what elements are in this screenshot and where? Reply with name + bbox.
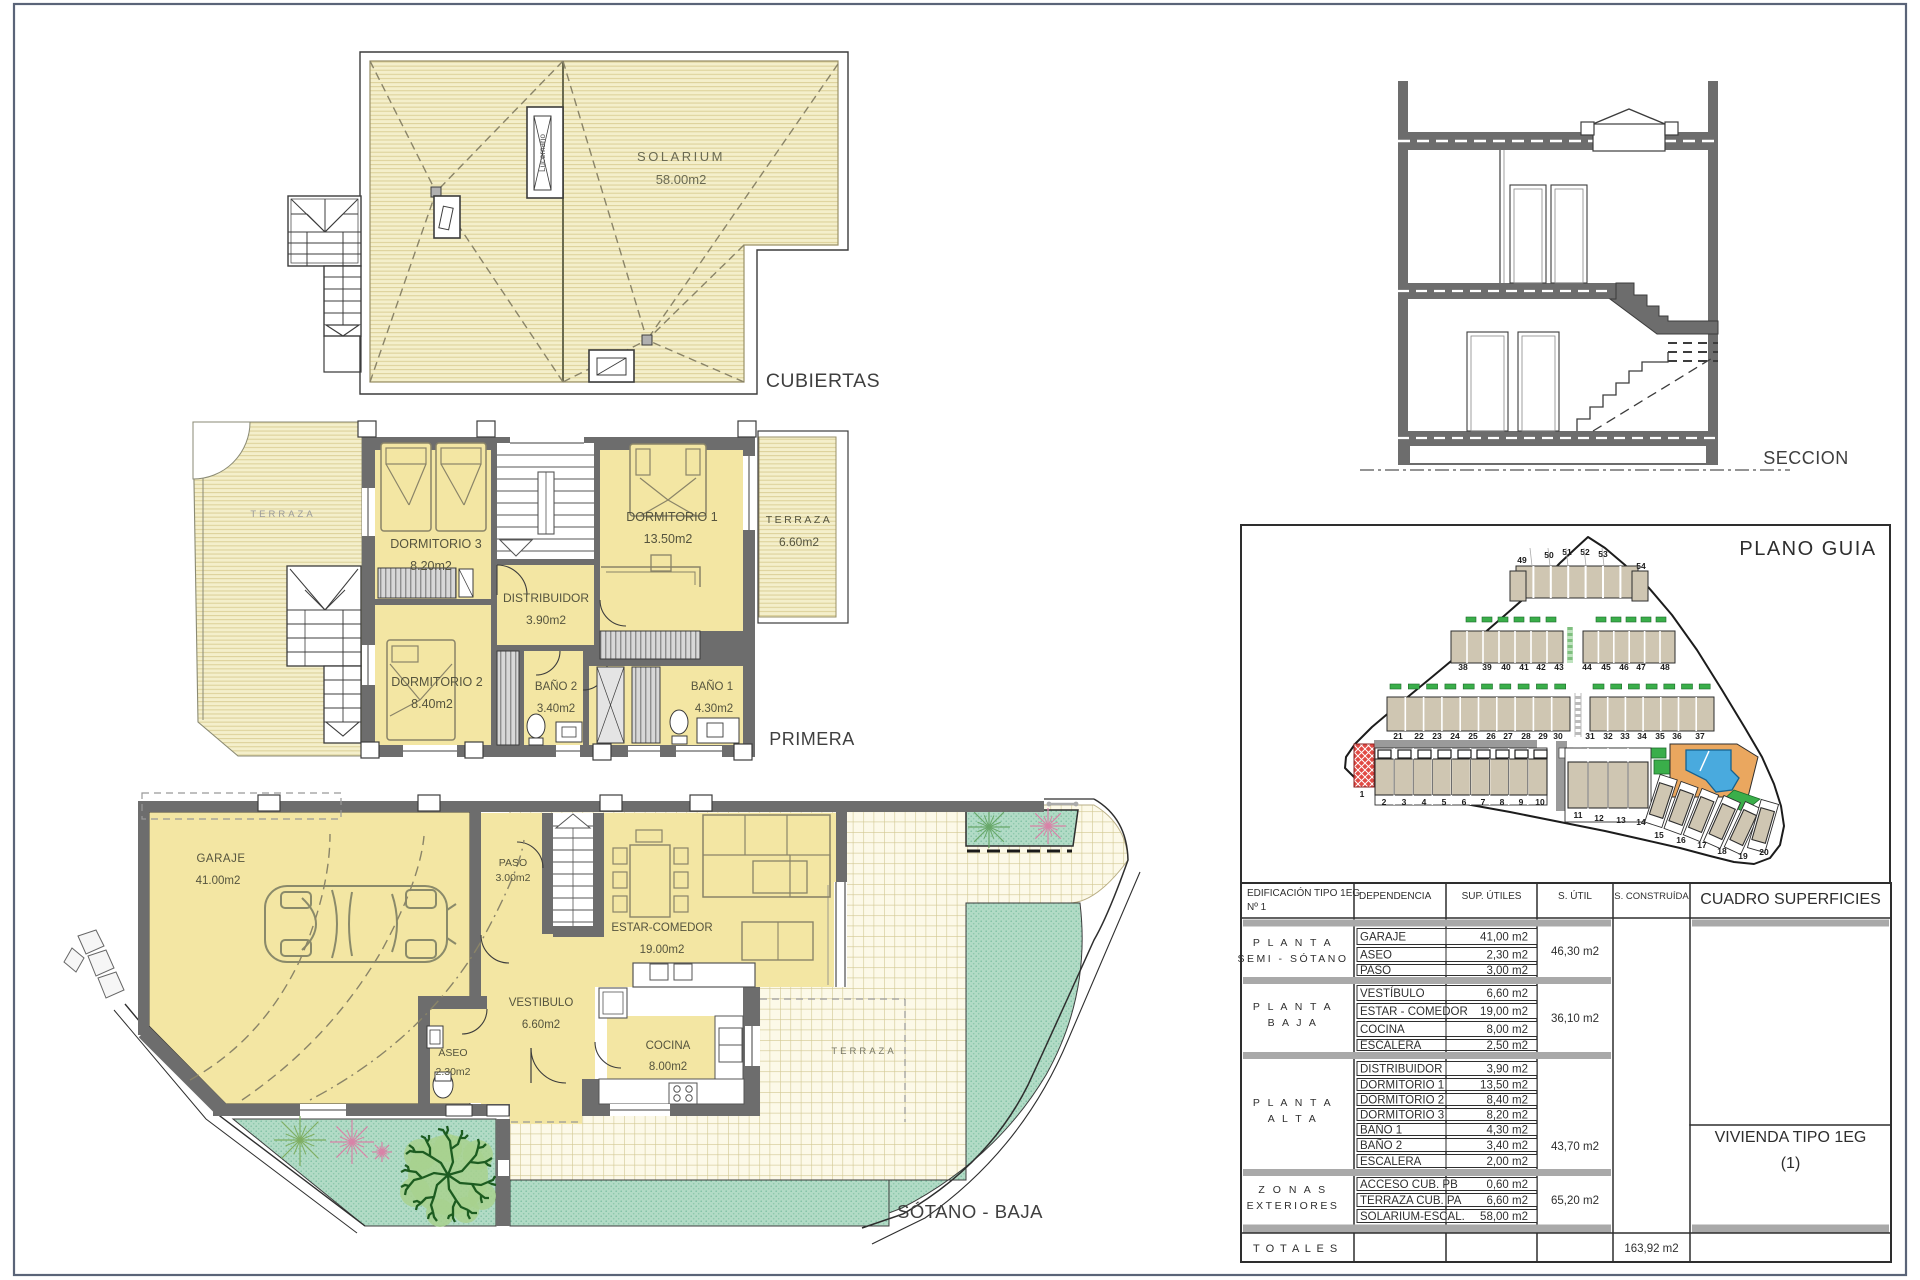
svg-text:B A J A: B A J A [1268, 1017, 1319, 1029]
svg-text:2: 2 [1382, 797, 1387, 807]
svg-text:15: 15 [1654, 830, 1664, 840]
svg-text:DORMITORIO 3: DORMITORIO 3 [390, 537, 481, 551]
svg-text:13,50 m2: 13,50 m2 [1480, 1080, 1528, 1092]
svg-text:8.20m2: 8.20m2 [410, 559, 452, 573]
svg-text:DORMITORIO 3: DORMITORIO 3 [1360, 1110, 1444, 1122]
svg-text:VESTÍBULO: VESTÍBULO [1360, 987, 1425, 1000]
svg-text:47: 47 [1636, 662, 1646, 672]
svg-text:8: 8 [1500, 797, 1505, 807]
svg-text:24: 24 [1450, 731, 1460, 741]
svg-text:44: 44 [1582, 662, 1592, 672]
svg-text:2,30 m2: 2,30 m2 [1486, 950, 1528, 962]
svg-text:48: 48 [1660, 662, 1670, 672]
svg-text:54: 54 [1636, 561, 1646, 571]
svg-text:3,00 m2: 3,00 m2 [1486, 965, 1528, 977]
svg-text:3: 3 [1402, 797, 1407, 807]
svg-text:2,50 m2: 2,50 m2 [1486, 1040, 1528, 1052]
svg-text:ASEO: ASEO [438, 1047, 467, 1059]
svg-text:BAÑO 2: BAÑO 2 [535, 680, 577, 693]
svg-text:23: 23 [1432, 731, 1442, 741]
svg-text:38: 38 [1458, 662, 1468, 672]
svg-text:4,30 m2: 4,30 m2 [1486, 1125, 1528, 1137]
svg-text:DISTRIBUIDOR: DISTRIBUIDOR [503, 591, 589, 605]
svg-text:VIVIENDA TIPO 1EG: VIVIENDA TIPO 1EG [1715, 1129, 1867, 1146]
svg-text:SUP. ÚTILES: SUP. ÚTILES [1462, 889, 1522, 902]
svg-text:43,70 m2: 43,70 m2 [1551, 1141, 1599, 1153]
svg-text:65,20 m2: 65,20 m2 [1551, 1195, 1599, 1207]
svg-text:49: 49 [1517, 555, 1527, 565]
svg-text:8,40 m2: 8,40 m2 [1486, 1095, 1528, 1107]
svg-text:42: 42 [1536, 662, 1546, 672]
svg-text:11: 11 [1574, 810, 1583, 820]
svg-text:3,40 m2: 3,40 m2 [1486, 1140, 1528, 1152]
svg-text:BAÑO 1: BAÑO 1 [1360, 1124, 1402, 1137]
svg-text:(1): (1) [1781, 1155, 1801, 1172]
svg-text:3.00m2: 3.00m2 [495, 872, 530, 884]
svg-text:A L T A: A L T A [1268, 1113, 1319, 1125]
svg-text:58.00m2: 58.00m2 [656, 172, 707, 187]
svg-text:S. CONSTRUÍDA: S. CONSTRUÍDA [1614, 891, 1689, 902]
svg-text:GARAJE: GARAJE [1360, 932, 1406, 944]
svg-text:CUADRO SUPERFICIES: CUADRO SUPERFICIES [1700, 891, 1880, 908]
svg-text:33: 33 [1620, 731, 1630, 741]
svg-text:TERRAZA: TERRAZA [766, 514, 833, 526]
svg-text:SECCION: SECCION [1763, 448, 1849, 468]
svg-text:8,00 m2: 8,00 m2 [1486, 1024, 1528, 1036]
svg-text:36: 36 [1672, 731, 1682, 741]
svg-text:ESTAR - COMEDOR: ESTAR - COMEDOR [1360, 1006, 1468, 1018]
svg-text:5: 5 [1442, 797, 1447, 807]
svg-text:41: 41 [1519, 662, 1529, 672]
svg-text:CUBIERTAS: CUBIERTAS [766, 370, 880, 392]
svg-text:0,60 m2: 0,60 m2 [1486, 1179, 1528, 1191]
svg-text:37: 37 [1695, 731, 1705, 741]
svg-text:41,00 m2: 41,00 m2 [1480, 932, 1528, 944]
svg-text:27: 27 [1503, 731, 1513, 741]
svg-text:ACCESO CUB. PB: ACCESO CUB. PB [1360, 1179, 1458, 1191]
svg-text:26: 26 [1486, 731, 1496, 741]
svg-text:DEPENDENCIA: DEPENDENCIA [1359, 891, 1432, 902]
svg-text:7: 7 [1481, 797, 1486, 807]
svg-text:COCINA: COCINA [646, 1040, 691, 1052]
svg-text:163,92 m2: 163,92 m2 [1624, 1243, 1678, 1255]
svg-text:3.40m2: 3.40m2 [537, 703, 575, 715]
svg-text:22: 22 [1414, 731, 1424, 741]
svg-text:T O T A L E S: T O T A L E S [1253, 1243, 1339, 1255]
svg-text:TERRAZA: TERRAZA [250, 509, 315, 520]
svg-text:PASO: PASO [499, 857, 527, 869]
svg-text:2,00 m2: 2,00 m2 [1486, 1156, 1528, 1168]
svg-text:P L A N T A: P L A N T A [1253, 937, 1333, 949]
svg-text:ESTAR-COMEDOR: ESTAR-COMEDOR [611, 922, 712, 934]
svg-text:COCINA: COCINA [1360, 1024, 1405, 1036]
svg-text:21: 21 [1393, 731, 1403, 741]
svg-text:PLANO GUIA: PLANO GUIA [1739, 538, 1876, 560]
svg-text:P L A N T A: P L A N T A [1253, 1097, 1333, 1109]
svg-text:6,60 m2: 6,60 m2 [1486, 1195, 1528, 1207]
svg-text:3,90 m2: 3,90 m2 [1486, 1064, 1528, 1076]
svg-text:GARAJE: GARAJE [196, 853, 245, 865]
svg-text:45: 45 [1601, 662, 1611, 672]
svg-text:34: 34 [1637, 731, 1647, 741]
svg-text:PRIMERA: PRIMERA [769, 729, 855, 749]
svg-text:Nº 1: Nº 1 [1247, 902, 1267, 913]
svg-text:46: 46 [1619, 662, 1629, 672]
svg-text:ESCALERA: ESCALERA [1360, 1156, 1422, 1168]
svg-text:6: 6 [1462, 797, 1467, 807]
svg-text:39: 39 [1482, 662, 1492, 672]
svg-text:36,10 m2: 36,10 m2 [1551, 1013, 1599, 1025]
svg-text:DISTRIBUIDOR: DISTRIBUIDOR [1360, 1064, 1442, 1076]
svg-text:8.00m2: 8.00m2 [649, 1061, 687, 1073]
svg-text:SEMI - SÓTANO: SEMI - SÓTANO [1237, 952, 1348, 965]
svg-text:20: 20 [1759, 847, 1769, 857]
svg-text:S. ÚTIL: S. ÚTIL [1558, 889, 1592, 902]
svg-text:9: 9 [1519, 797, 1524, 807]
svg-text:Z O N A S: Z O N A S [1258, 1184, 1327, 1196]
svg-text:VESTIBULO: VESTIBULO [509, 997, 574, 1009]
svg-text:8,20 m2: 8,20 m2 [1486, 1110, 1528, 1122]
svg-text:16: 16 [1676, 835, 1686, 845]
svg-text:25: 25 [1468, 731, 1478, 741]
svg-text:10: 10 [1535, 797, 1545, 807]
svg-text:46,30 m2: 46,30 m2 [1551, 946, 1599, 958]
svg-text:6.60m2: 6.60m2 [779, 535, 819, 549]
svg-text:BAÑO 1: BAÑO 1 [691, 680, 733, 693]
svg-text:SÓTANO - BAJA: SÓTANO - BAJA [897, 1201, 1043, 1222]
svg-text:3.90m2: 3.90m2 [526, 613, 566, 627]
svg-text:BAÑO 2: BAÑO 2 [1360, 1139, 1402, 1152]
svg-text:4: 4 [1422, 797, 1427, 807]
svg-text:12: 12 [1594, 813, 1604, 823]
svg-text:TERRAZA: TERRAZA [831, 1046, 896, 1057]
svg-text:35: 35 [1655, 731, 1665, 741]
svg-text:6.60m2: 6.60m2 [522, 1019, 560, 1031]
svg-text:13: 13 [1616, 815, 1626, 825]
svg-text:6,60 m2: 6,60 m2 [1486, 988, 1528, 1000]
svg-text:19,00 m2: 19,00 m2 [1480, 1006, 1528, 1018]
svg-text:31: 31 [1585, 731, 1595, 741]
svg-text:40: 40 [1501, 662, 1511, 672]
svg-text:PASO: PASO [1360, 965, 1391, 977]
svg-text:58,00 m2: 58,00 m2 [1480, 1211, 1528, 1223]
svg-text:EXTERIORES: EXTERIORES [1247, 1200, 1340, 1212]
svg-text:DORMITORIO 1: DORMITORIO 1 [1360, 1080, 1444, 1092]
svg-text:SOLARIUM-ESCAL.: SOLARIUM-ESCAL. [1360, 1211, 1465, 1223]
svg-text:Lucernario: Lucernario [538, 134, 547, 172]
svg-text:32: 32 [1603, 731, 1613, 741]
svg-text:EDIFICACIÓN TIPO 1EG: EDIFICACIÓN TIPO 1EG [1247, 886, 1360, 899]
svg-text:19.00m2: 19.00m2 [640, 944, 685, 956]
svg-text:P L A N T A: P L A N T A [1253, 1001, 1333, 1013]
svg-text:ASEO: ASEO [1360, 950, 1392, 962]
svg-text:28: 28 [1521, 731, 1531, 741]
svg-text:SOLARIUM: SOLARIUM [637, 149, 725, 164]
svg-text:DORMITORIO 1: DORMITORIO 1 [626, 510, 717, 524]
svg-text:4.30m2: 4.30m2 [695, 703, 733, 715]
svg-text:13.50m2: 13.50m2 [644, 532, 693, 546]
svg-text:19: 19 [1738, 851, 1748, 861]
svg-text:41.00m2: 41.00m2 [196, 875, 241, 887]
svg-text:30: 30 [1553, 731, 1563, 741]
svg-text:DORMITORIO 2: DORMITORIO 2 [1360, 1095, 1444, 1107]
svg-text:2.30m2: 2.30m2 [435, 1066, 470, 1078]
svg-text:TERRAZA CUB. PA: TERRAZA CUB. PA [1360, 1195, 1462, 1207]
svg-text:1: 1 [1360, 789, 1365, 799]
svg-text:29: 29 [1538, 731, 1548, 741]
svg-text:8.40m2: 8.40m2 [411, 697, 453, 711]
svg-text:43: 43 [1554, 662, 1564, 672]
svg-text:DORMITORIO 2: DORMITORIO 2 [391, 675, 482, 689]
svg-text:ESCALERA: ESCALERA [1360, 1040, 1422, 1052]
